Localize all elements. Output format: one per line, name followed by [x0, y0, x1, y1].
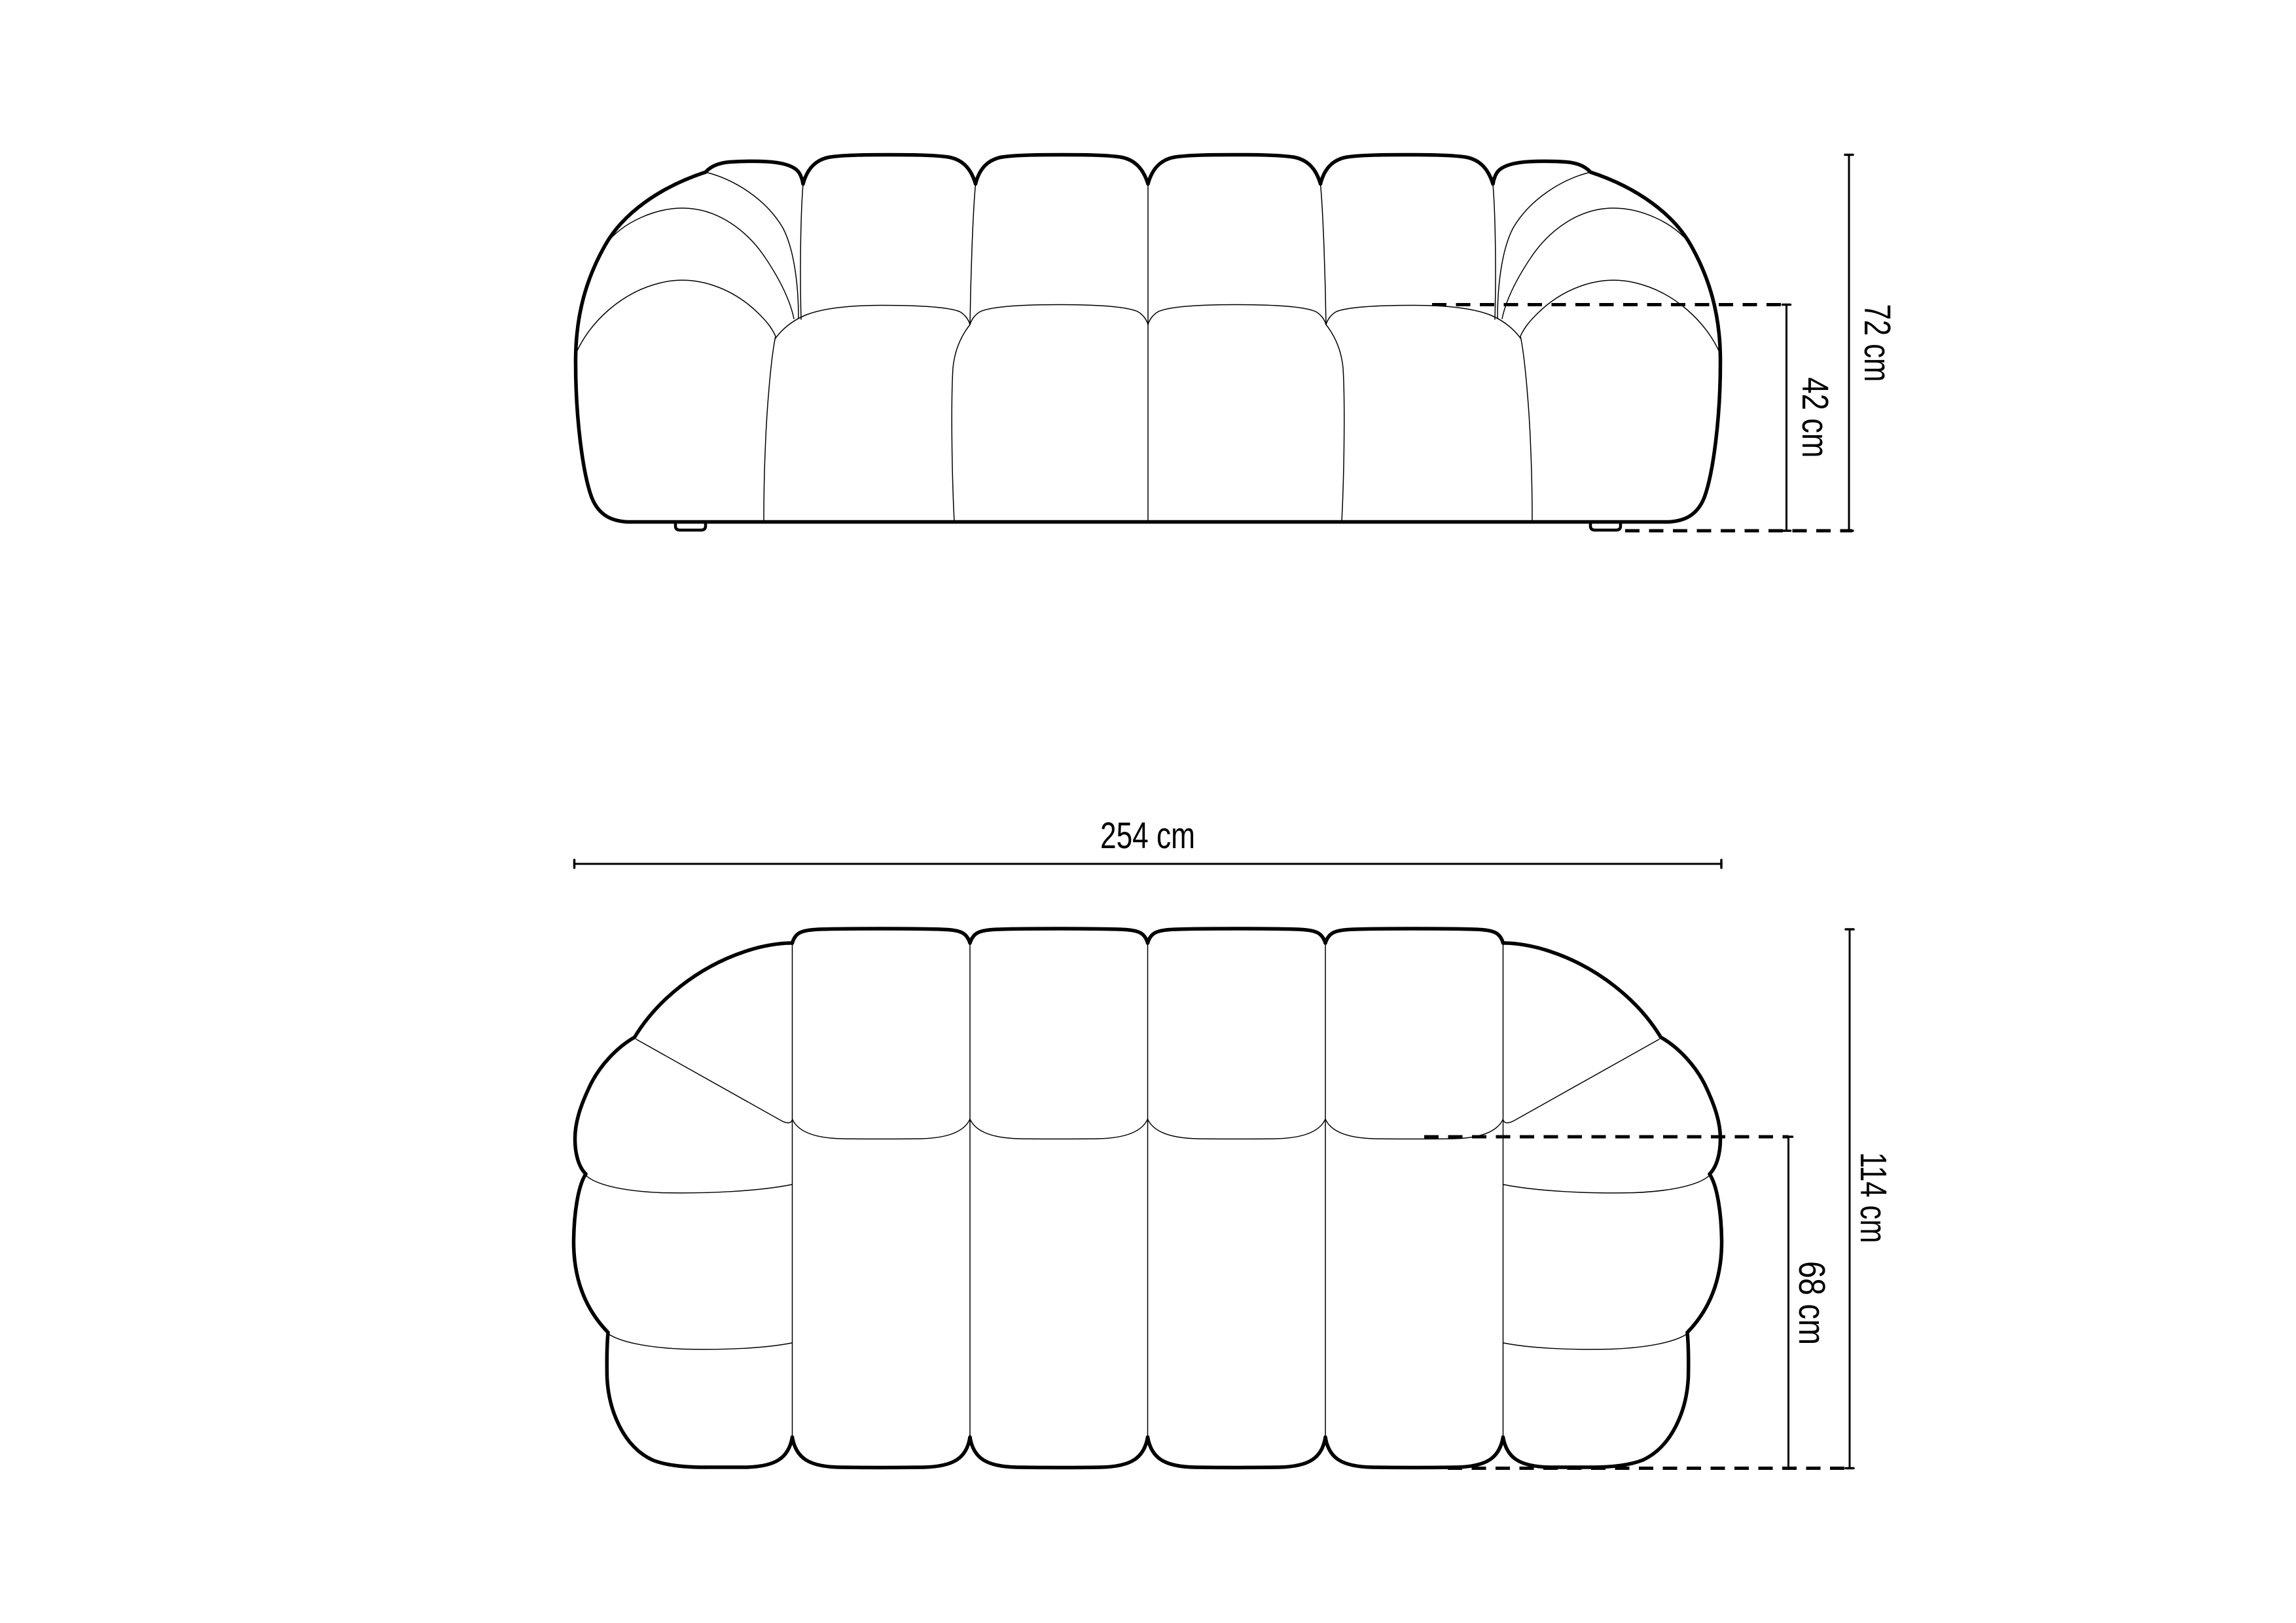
svg-text:254 cm: 254 cm: [1100, 815, 1195, 856]
svg-text:42 cm: 42 cm: [1795, 378, 1836, 458]
svg-text:68 cm: 68 cm: [1791, 1261, 1833, 1345]
svg-text:72 cm: 72 cm: [1857, 304, 1898, 382]
svg-text:114 cm: 114 cm: [1853, 1152, 1894, 1243]
